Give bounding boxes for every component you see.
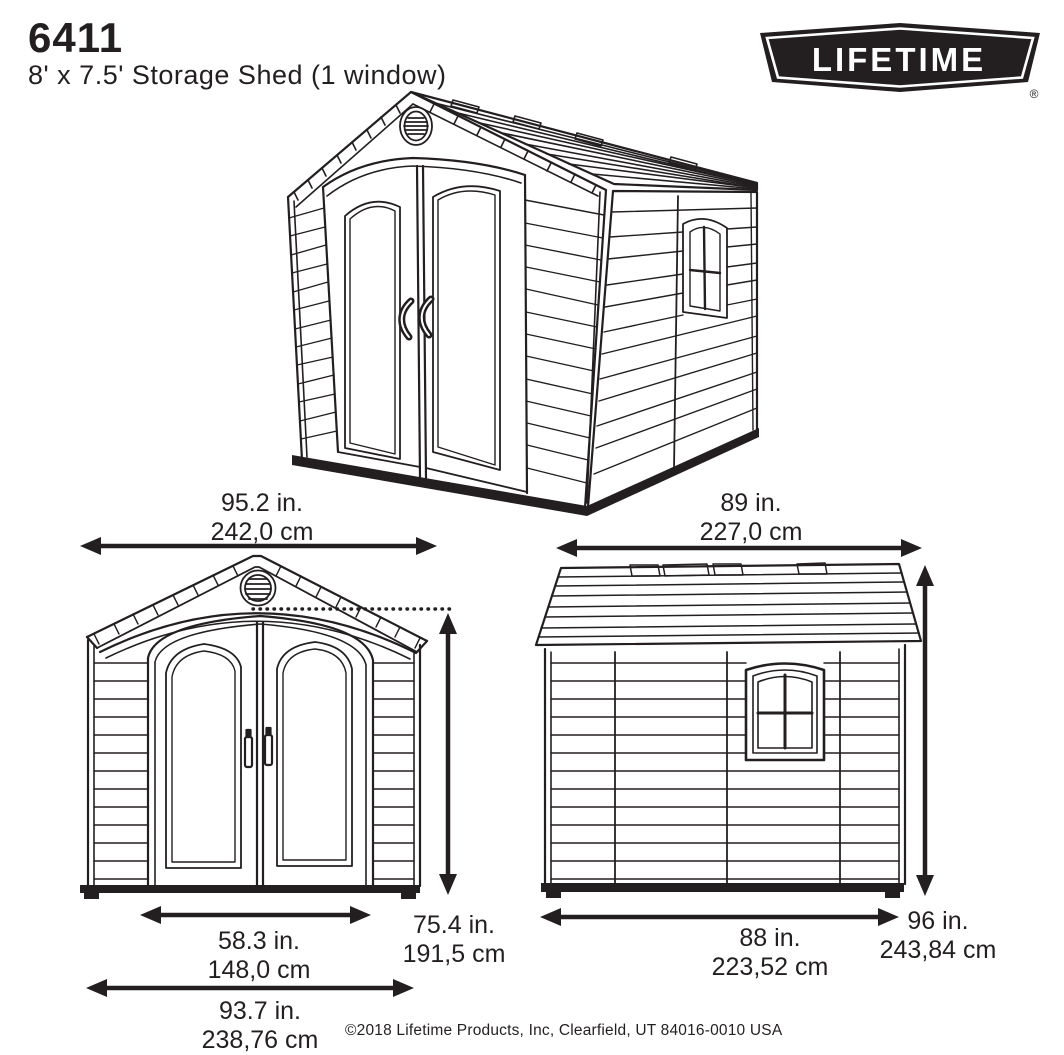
side-siding <box>551 663 899 879</box>
wall-height-label: 75.4 in. 191,5 cm <box>403 911 506 969</box>
front-door-handles <box>245 728 272 767</box>
side-roof <box>536 563 921 645</box>
door-width-label: 58.3 in. 148,0 cm <box>208 927 311 985</box>
front-gable-vent-icon <box>241 571 276 606</box>
iso-front-face <box>288 92 606 508</box>
front-base <box>80 885 420 899</box>
front-double-doors <box>148 616 373 886</box>
iso-double-doors <box>323 158 527 493</box>
iso-side-window <box>683 219 727 318</box>
iso-gable-vent-icon <box>400 107 432 145</box>
door-width-arrow <box>140 906 371 924</box>
iso-roof <box>411 92 757 190</box>
peak-height-arrow <box>916 565 934 896</box>
side-base <box>541 883 904 898</box>
wall-height-arrow <box>439 613 457 895</box>
side-panel-seams <box>615 652 840 884</box>
side-window <box>746 664 824 761</box>
base-width-label: 93.7 in. 238,76 cm <box>202 997 319 1055</box>
iso-side-face <box>587 191 757 507</box>
base-depth-label: 88 in. 223,52 cm <box>712 924 829 982</box>
iso-base-skids <box>292 428 759 516</box>
shed-dimension-diagram: 6411 8' x 7.5' Storage Shed (1 window) L… <box>0 0 1064 1055</box>
iso-view-drawing <box>288 92 759 516</box>
front-width-label: 95.2 in. 242,0 cm <box>211 489 314 547</box>
side-view-drawing <box>536 563 921 898</box>
iso-front-siding <box>289 200 604 483</box>
side-depth-label: 89 in. 227,0 cm <box>700 489 803 547</box>
shed-line-art <box>0 0 1064 1055</box>
front-view-drawing <box>80 556 456 899</box>
copyright-notice: ©2018 Lifetime Products, Inc, Clearfield… <box>345 1022 782 1040</box>
peak-height-label: 96 in. 243,84 cm <box>880 907 997 965</box>
